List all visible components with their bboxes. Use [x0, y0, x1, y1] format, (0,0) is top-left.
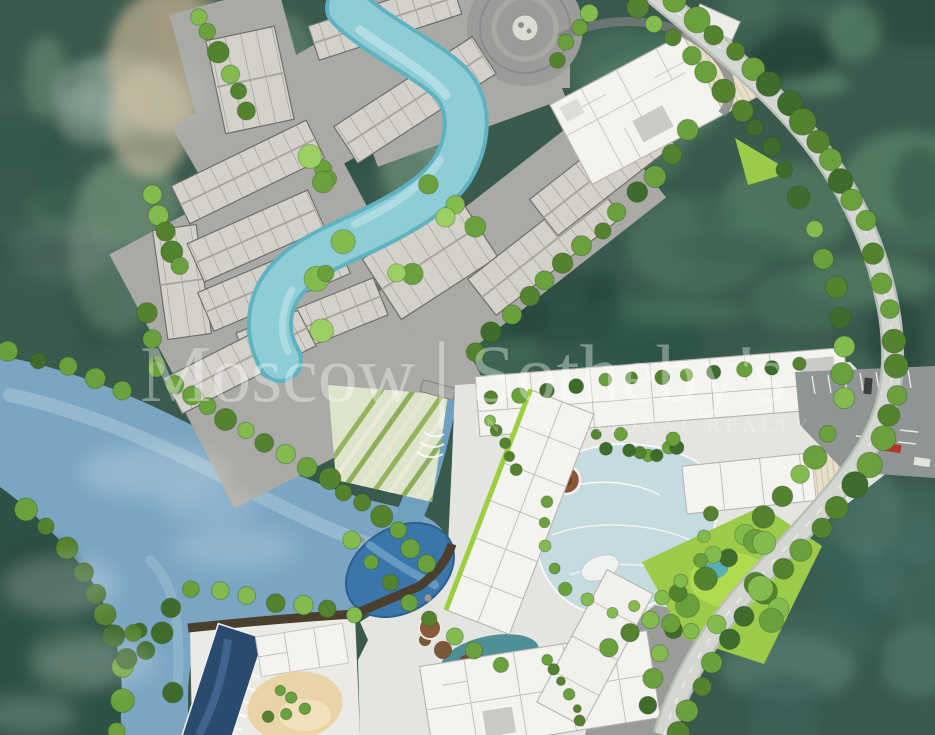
tree-icon — [790, 539, 812, 561]
tree-icon — [650, 449, 663, 462]
tree-icon — [298, 144, 322, 168]
tree-icon — [831, 362, 853, 384]
tree-icon — [639, 696, 657, 714]
tree-icon — [607, 203, 625, 221]
tree-icon — [388, 264, 406, 282]
tree-icon — [789, 108, 816, 135]
mist-wisp — [70, 55, 210, 135]
tree-icon — [401, 594, 418, 611]
tree-icon — [552, 253, 572, 273]
tree-icon — [163, 682, 184, 703]
tree-icon — [294, 595, 314, 615]
mist-wisp — [173, 526, 297, 570]
tree-icon — [719, 549, 737, 567]
tree-icon — [627, 0, 649, 18]
mist-wisp — [160, 485, 260, 525]
tree-icon — [343, 531, 361, 549]
tree-icon — [335, 484, 352, 501]
tree-icon — [221, 65, 239, 83]
tree-icon — [573, 705, 581, 713]
tree-icon — [819, 148, 841, 170]
tree-icon — [813, 249, 834, 270]
tree-icon — [436, 208, 455, 227]
tree-icon — [580, 4, 598, 22]
tree-icon — [806, 221, 823, 238]
tree-icon — [677, 119, 698, 140]
tree-icon — [111, 689, 135, 713]
tree-icon — [364, 555, 379, 570]
tree-icon — [354, 494, 371, 511]
tree-icon — [266, 594, 285, 613]
tree-icon — [276, 444, 295, 463]
resort-master-plan-screenshot: Moscow | Sotheby's INTERNATIONAL REALTY — [0, 0, 935, 735]
tree-icon — [137, 303, 158, 324]
tree-icon — [548, 664, 559, 675]
tree-icon — [382, 574, 398, 590]
tree-icon — [559, 582, 572, 595]
tree-icon — [520, 286, 540, 306]
tree-icon — [884, 354, 908, 378]
tree-icon — [762, 137, 781, 156]
forest-blotch — [858, 536, 902, 607]
tree-icon — [834, 388, 855, 409]
tree-icon — [581, 593, 594, 606]
tree-icon — [753, 531, 776, 554]
tree-icon — [230, 83, 246, 99]
tree-icon — [887, 386, 907, 406]
tree-icon — [787, 186, 810, 209]
tree-icon — [599, 442, 612, 455]
tree-icon — [727, 42, 745, 60]
tree-icon — [748, 576, 774, 602]
tree-icon — [346, 607, 362, 623]
tree-icon — [371, 505, 393, 527]
tree-icon — [421, 611, 437, 627]
mist-wisp — [33, 636, 157, 688]
tree-icon — [734, 606, 754, 626]
tree-icon — [662, 614, 681, 633]
tree-icon — [390, 522, 407, 539]
tree-icon — [418, 555, 436, 573]
tree-icon — [623, 444, 636, 457]
forest-blotch — [852, 646, 891, 674]
tree-icon — [0, 341, 18, 361]
tree-icon — [655, 590, 670, 605]
tree-icon — [211, 582, 229, 600]
tree-icon — [85, 368, 106, 389]
forest-blotch — [35, 123, 78, 222]
tree-icon — [541, 496, 553, 508]
tree-icon — [732, 100, 754, 122]
tree-icon — [825, 496, 848, 519]
tree-icon — [59, 357, 77, 375]
tree-icon — [542, 654, 553, 665]
tree-icon — [558, 34, 574, 50]
tree-icon — [878, 404, 900, 426]
watermark-subtitle: INTERNATIONAL REALTY — [474, 416, 813, 437]
mist-wisp — [5, 220, 115, 280]
tree-icon — [539, 517, 549, 527]
tree-icon — [642, 611, 660, 629]
tree-icon — [182, 581, 199, 598]
tree-icon — [318, 265, 334, 281]
tree-icon — [812, 518, 832, 538]
tree-icon — [701, 652, 722, 673]
tree-icon — [113, 381, 132, 400]
tree-icon — [207, 41, 229, 63]
fountain-sculpture — [518, 22, 524, 28]
tree-icon — [285, 692, 296, 703]
tree-icon — [694, 567, 717, 590]
tree-icon — [698, 530, 710, 542]
tree-icon — [645, 16, 662, 33]
tree-icon — [151, 622, 173, 644]
tree-icon — [571, 236, 591, 256]
tree-icon — [418, 175, 438, 195]
tree-icon — [401, 539, 420, 558]
site-plan-map: Moscow | Sotheby's INTERNATIONAL REALTY — [0, 0, 935, 735]
tree-icon — [171, 257, 188, 274]
watermark-separator: | — [432, 322, 451, 429]
forest-blotch — [671, 231, 796, 265]
tree-icon — [707, 615, 726, 634]
tree-icon — [607, 607, 618, 618]
tree-icon — [275, 685, 285, 695]
tree-icon — [539, 540, 551, 552]
tree-icon — [834, 336, 855, 357]
tree-icon — [318, 600, 336, 618]
tree-icon — [502, 305, 521, 324]
tree-icon — [791, 465, 809, 483]
tree-icon — [862, 243, 884, 265]
parked-car-dark — [863, 378, 872, 395]
tree-icon — [297, 458, 317, 478]
tree-icon — [550, 52, 566, 68]
tree-icon — [704, 25, 724, 45]
tree-icon — [600, 638, 618, 656]
tree-icon — [694, 554, 708, 568]
tree-icon — [746, 119, 763, 136]
tree-icon — [829, 307, 851, 329]
planting-bed — [434, 641, 452, 659]
tree-icon — [842, 472, 868, 498]
tree-icon — [465, 642, 482, 659]
tree-icon — [504, 451, 514, 461]
tree-icon — [108, 723, 125, 735]
tree-icon — [662, 144, 682, 164]
tree-icon — [651, 645, 668, 662]
forest-blotch — [619, 298, 749, 325]
tree-icon — [776, 162, 793, 179]
tree-icon — [627, 182, 648, 203]
tree-icon — [871, 273, 892, 294]
tree-icon — [237, 102, 255, 120]
tree-icon — [535, 271, 554, 290]
tree-icon — [703, 506, 718, 521]
tree-icon — [549, 563, 560, 574]
tree-icon — [595, 223, 611, 239]
tree-icon — [563, 689, 575, 701]
tree-icon — [803, 446, 827, 470]
tree-icon — [644, 166, 666, 188]
tree-icon — [695, 61, 717, 83]
tree-icon — [493, 657, 508, 672]
tree-icon — [199, 23, 216, 40]
tree-icon — [238, 422, 254, 438]
tree-icon — [312, 171, 334, 193]
tree-icon — [191, 9, 208, 26]
tree-icon — [465, 216, 486, 237]
tree-icon — [255, 433, 274, 452]
tree-icon — [756, 71, 781, 96]
tree-icon — [37, 518, 54, 535]
tree-icon — [676, 700, 698, 722]
watermark-brand-right: Sotheby's — [470, 328, 785, 419]
tree-icon — [752, 506, 775, 529]
tree-icon — [880, 300, 899, 319]
tree-icon — [693, 677, 712, 696]
tree-icon — [773, 558, 794, 579]
tree-icon — [683, 46, 702, 65]
tree-icon — [500, 438, 511, 449]
tree-icon — [664, 29, 681, 46]
watermark-brand-left: Moscow — [140, 331, 416, 419]
tree-icon — [15, 498, 38, 521]
tree-icon — [262, 711, 274, 723]
tree-icon — [856, 210, 876, 230]
tree-icon — [331, 230, 355, 254]
tree-icon — [125, 625, 142, 642]
tree-icon — [683, 623, 699, 639]
tree-icon — [882, 329, 906, 353]
tree-icon — [819, 426, 836, 443]
tree-icon — [712, 79, 736, 103]
tree-icon — [143, 185, 162, 204]
tree-icon — [574, 715, 585, 726]
tree-icon — [299, 703, 311, 715]
tree-icon — [446, 628, 463, 645]
tree-icon — [156, 222, 175, 241]
tree-icon — [572, 20, 588, 36]
tree-icon — [238, 587, 256, 605]
forest-blotch — [692, 198, 739, 229]
tree-icon — [759, 608, 783, 632]
tree-icon — [30, 353, 46, 369]
tree-icon — [621, 623, 639, 641]
tree-icon — [510, 464, 522, 476]
tree-icon — [871, 426, 896, 451]
tree-icon — [674, 574, 688, 588]
tree-icon — [281, 708, 292, 719]
tree-icon — [841, 189, 863, 211]
tree-icon — [825, 276, 847, 298]
tree-icon — [629, 600, 640, 611]
tree-icon — [161, 598, 181, 618]
mist-wisp — [2, 555, 118, 615]
tree-icon — [793, 357, 806, 370]
tree-icon — [772, 486, 793, 507]
tree-icon — [557, 677, 566, 686]
tree-icon — [643, 668, 663, 688]
